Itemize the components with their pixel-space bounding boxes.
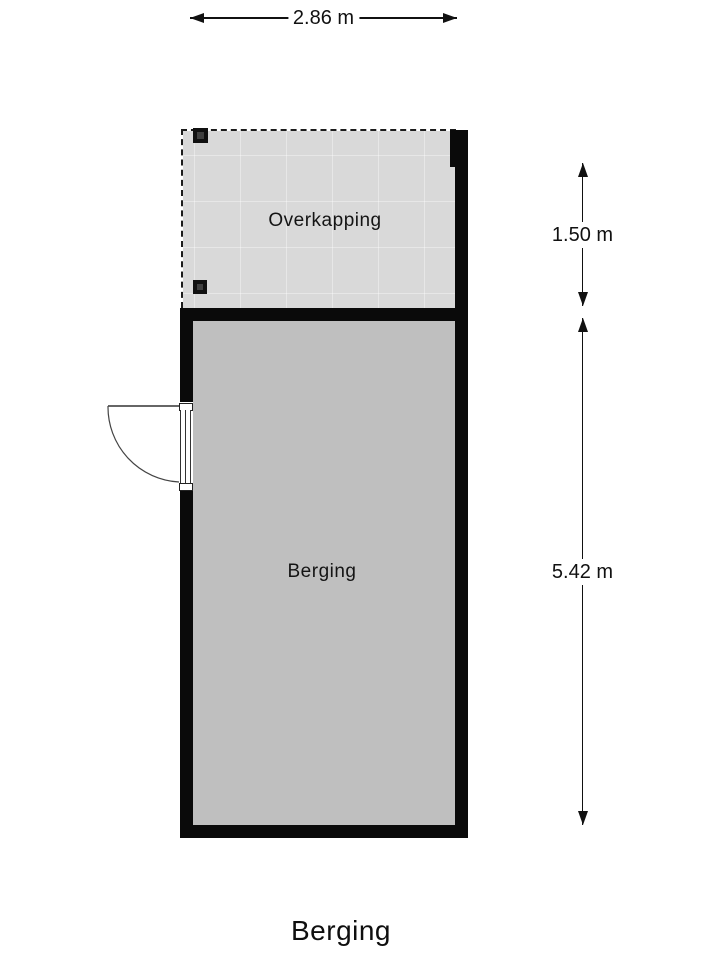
arrowhead-up-icon	[578, 163, 588, 177]
arrowhead-up-icon	[578, 318, 588, 332]
arrowhead-right-icon	[443, 13, 457, 23]
dim-label-overkapping-depth: 1.50 m	[547, 222, 618, 248]
dim-label-berging-depth: 5.42 m	[547, 559, 618, 585]
berging-label: Berging	[288, 561, 357, 583]
arrowhead-down-icon	[578, 811, 588, 825]
door-threshold	[180, 410, 191, 483]
dimension-overkapping-depth: 1.50 m	[575, 163, 590, 306]
arrowhead-down-icon	[578, 292, 588, 306]
overkapping-right-wall	[455, 130, 468, 308]
door-jamb-bottom	[179, 483, 193, 491]
arrowhead-left-icon	[190, 13, 204, 23]
post-bottom-left	[193, 280, 207, 294]
page-title: Berging	[291, 915, 391, 947]
dim-label-top-width: 2.86 m	[288, 5, 359, 31]
overkapping-label: Overkapping	[268, 210, 381, 232]
floorplan-canvas: 2.86 m 1.50 m 5.42 m Overkapping Berging…	[0, 0, 720, 960]
dimension-berging-depth: 5.42 m	[575, 318, 590, 825]
door-arc	[108, 406, 179, 482]
post-top-left	[193, 128, 208, 143]
dimension-top-width: 2.86 m	[190, 9, 457, 27]
